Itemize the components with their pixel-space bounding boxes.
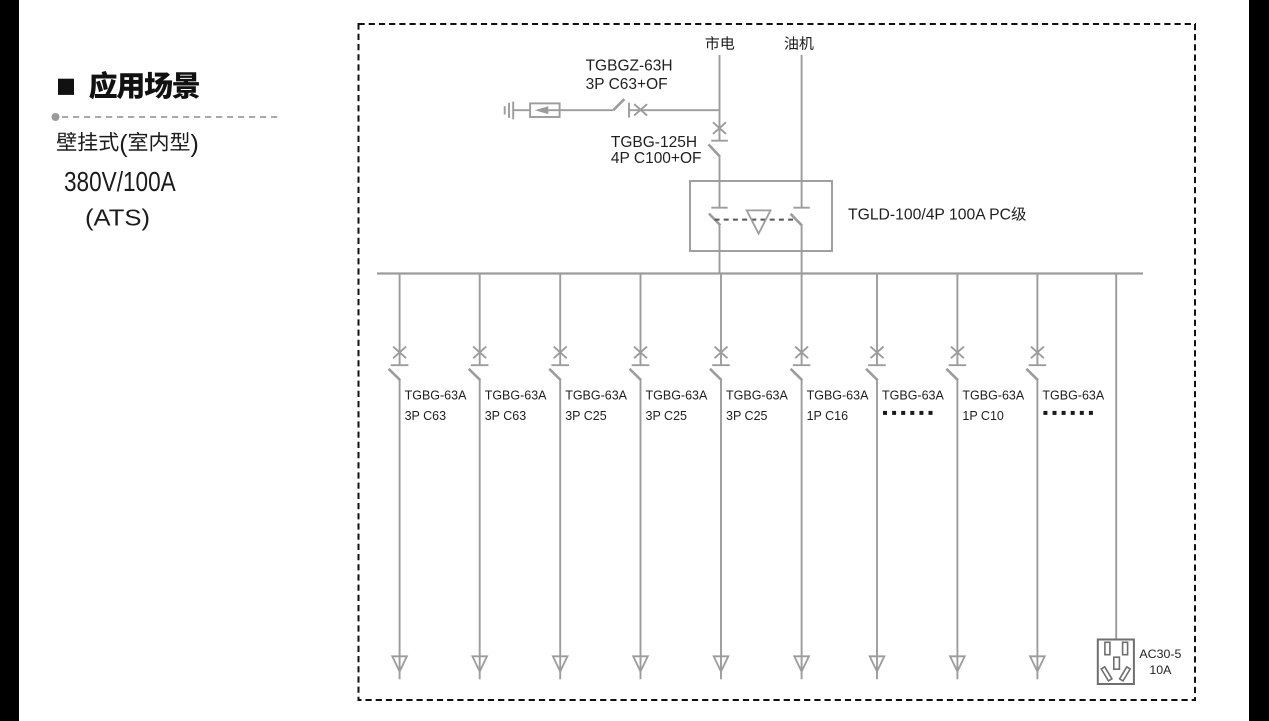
svg-text:380V/100A: 380V/100A — [64, 166, 176, 197]
svg-text:AC30-5: AC30-5 — [1139, 649, 1181, 661]
svg-text:TGBG-63A: TGBG-63A — [882, 389, 944, 403]
svg-text:3P C63+OF: 3P C63+OF — [586, 76, 668, 93]
svg-text:TGBG-63A: TGBG-63A — [807, 389, 869, 403]
svg-text:1P C16: 1P C16 — [807, 409, 849, 423]
svg-text:3P C25: 3P C25 — [726, 409, 768, 423]
svg-text:TGBG-63A: TGBG-63A — [1042, 389, 1104, 403]
svg-text:TGBGZ-63H: TGBGZ-63H — [586, 57, 673, 74]
svg-text:TGBG-63A: TGBG-63A — [646, 389, 708, 403]
svg-text:): ) — [191, 130, 199, 158]
svg-text:TGBG-63A: TGBG-63A — [565, 389, 627, 403]
svg-text:(: ( — [119, 130, 128, 158]
svg-text:3P C25: 3P C25 — [565, 409, 607, 423]
svg-text:3P C63: 3P C63 — [405, 409, 447, 423]
svg-text:TGBG-63A: TGBG-63A — [485, 389, 547, 403]
svg-text:(ATS): (ATS) — [85, 204, 150, 230]
svg-text:TGBG-125H: TGBG-125H — [611, 134, 697, 151]
svg-text:TGBG-63A: TGBG-63A — [962, 389, 1024, 403]
svg-text:TGBG-63A: TGBG-63A — [726, 389, 788, 403]
svg-text:1P C10: 1P C10 — [962, 409, 1004, 423]
svg-text:3P C25: 3P C25 — [646, 409, 688, 423]
svg-text:TGBG-63A: TGBG-63A — [405, 389, 467, 403]
svg-text:4P C100+OF: 4P C100+OF — [611, 150, 702, 167]
svg-text:10A: 10A — [1149, 665, 1171, 677]
svg-text:3P C63: 3P C63 — [485, 409, 527, 423]
svg-text:TGLD-100/4P 100A PC: TGLD-100/4P 100A PC — [848, 207, 1011, 224]
